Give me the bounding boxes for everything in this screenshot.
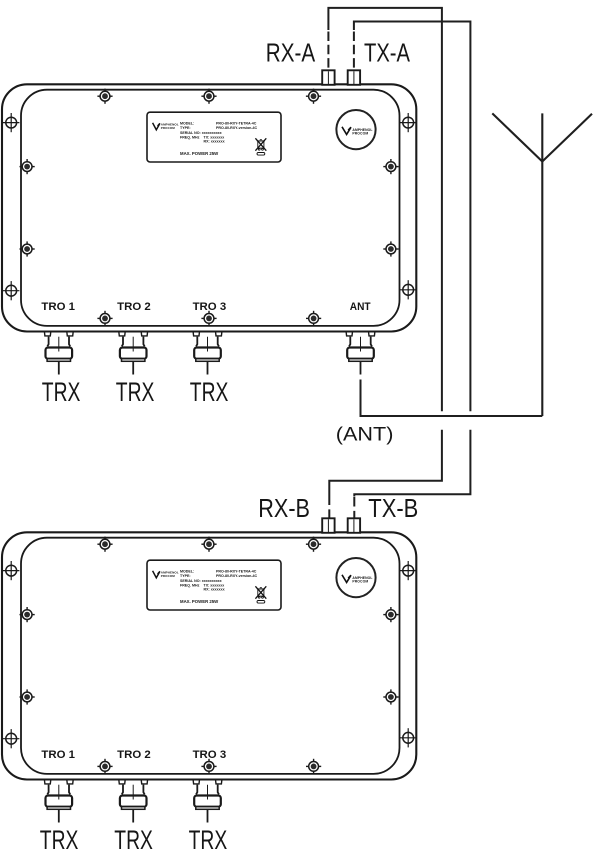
svg-text:PROCOM: PROCOM (161, 126, 176, 130)
svg-text:ANT: ANT (350, 301, 371, 313)
svg-text:TRX: TRX (42, 377, 81, 407)
svg-text:RX: xxxxxxx: RX: xxxxxxx (204, 588, 225, 592)
svg-text:PRO-80-RXY-version-4C: PRO-80-RXY-version-4C (216, 574, 258, 578)
svg-text:TYPE:: TYPE: (180, 126, 191, 130)
svg-text:(ANT): (ANT) (336, 424, 394, 445)
svg-text:MAX. POWER 25W: MAX. POWER 25W (180, 151, 219, 156)
svg-text:TX-B: TX-B (368, 493, 418, 523)
svg-text:RX: xxxxxxx: RX: xxxxxxx (204, 140, 225, 144)
svg-text:TRX: TRX (189, 825, 228, 855)
svg-text:TRX: TRX (114, 825, 153, 855)
svg-text:MODEL:: MODEL: (180, 569, 194, 573)
svg-text:PRO-80-RXY-version-4C: PRO-80-RXY-version-4C (216, 126, 258, 130)
svg-text:TRO 2: TRO 2 (117, 749, 151, 761)
svg-text:RX-A: RX-A (266, 37, 316, 67)
svg-text:FREQ. MHz: FREQ. MHz (180, 135, 200, 139)
svg-text:PRO-80-RXY-TETRA-4C: PRO-80-RXY-TETRA-4C (216, 121, 257, 125)
svg-text:TRX: TRX (40, 825, 79, 855)
svg-text:TX-A: TX-A (364, 37, 411, 67)
svg-text:TRO 3: TRO 3 (193, 749, 227, 761)
svg-text:TRO 1: TRO 1 (41, 749, 75, 761)
svg-text:TYPE:: TYPE: (180, 574, 191, 578)
svg-text:TRO 1: TRO 1 (41, 301, 75, 313)
svg-text:PRO-80-RXY-TETRA-4C: PRO-80-RXY-TETRA-4C (216, 569, 257, 573)
svg-text:PROCOM: PROCOM (352, 132, 368, 136)
svg-text:TRX: TRX (190, 377, 229, 407)
svg-text:PROCOM: PROCOM (352, 580, 368, 584)
svg-text:FREQ. MHz: FREQ. MHz (180, 583, 200, 587)
svg-text:PROCOM: PROCOM (161, 574, 176, 578)
svg-text:RX-B: RX-B (258, 493, 310, 523)
svg-text:MODEL:: MODEL: (180, 121, 194, 125)
svg-text:TRO 3: TRO 3 (193, 301, 227, 313)
svg-text:MAX. POWER 25W: MAX. POWER 25W (180, 599, 219, 604)
svg-text:TRO 2: TRO 2 (117, 301, 151, 313)
svg-text:TRX: TRX (116, 377, 155, 407)
